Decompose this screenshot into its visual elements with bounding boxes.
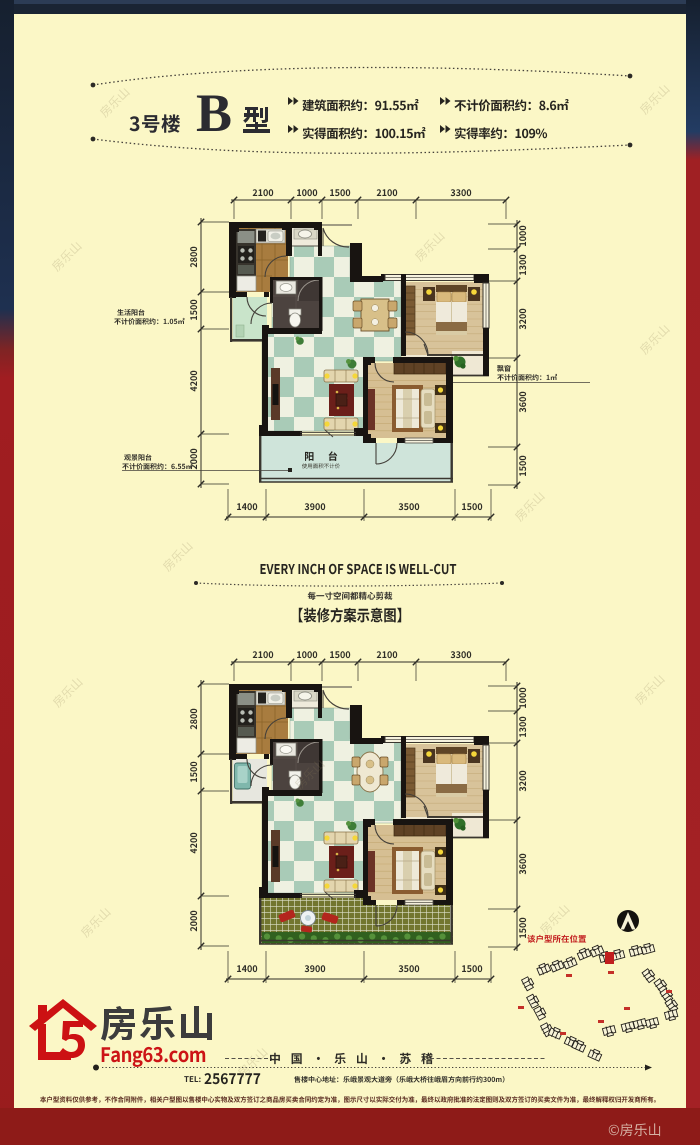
svg-text:B: B — [196, 83, 232, 143]
